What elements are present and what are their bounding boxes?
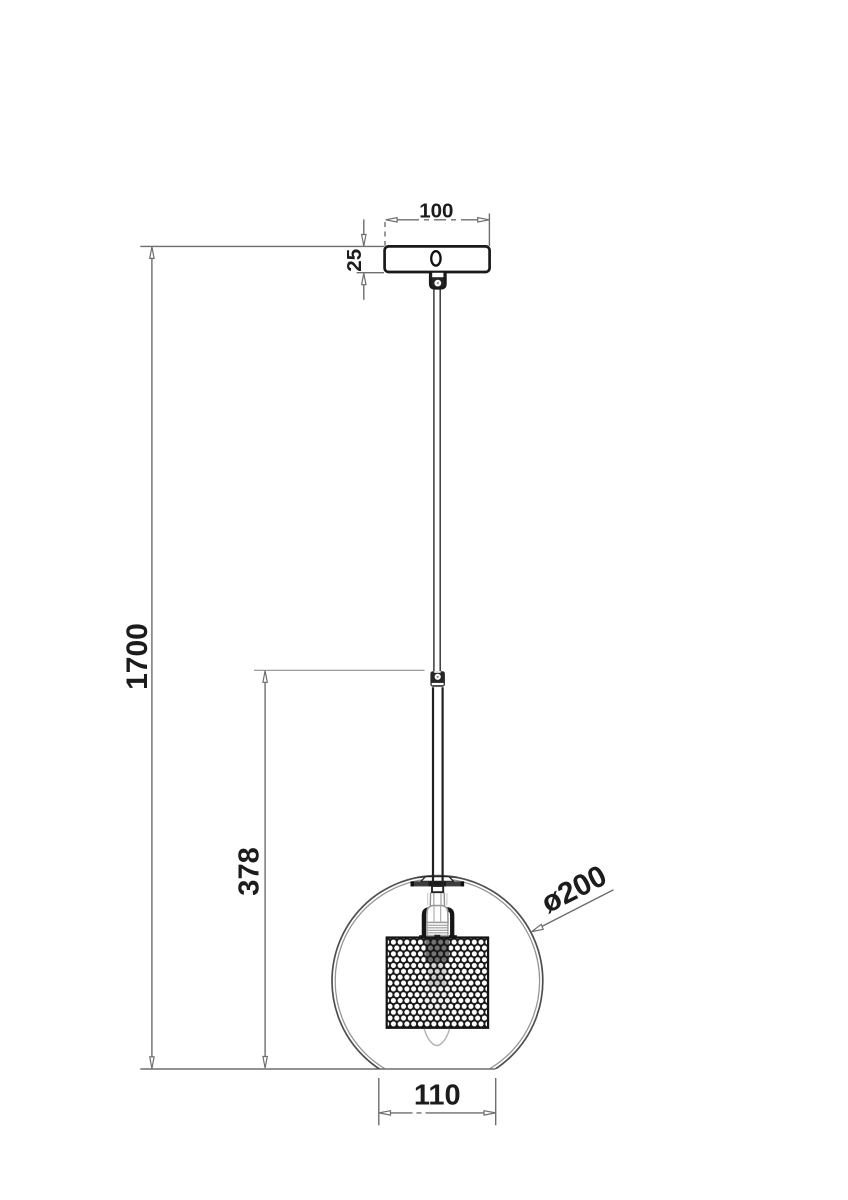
svg-text:1700: 1700 bbox=[121, 623, 154, 690]
svg-text:100: 100 bbox=[419, 199, 453, 222]
svg-text:110: 110 bbox=[414, 1080, 461, 1112]
svg-text:378: 378 bbox=[233, 847, 265, 895]
svg-text:25: 25 bbox=[343, 249, 366, 272]
